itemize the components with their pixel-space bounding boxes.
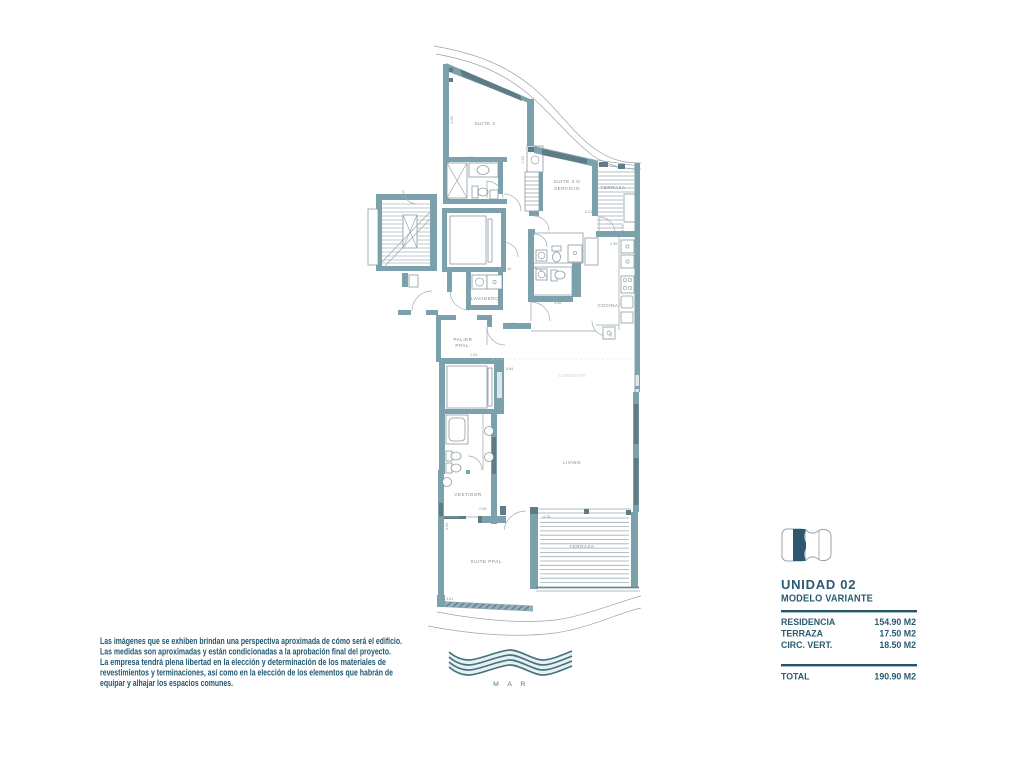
svg-text:3.61: 3.61 <box>446 597 453 601</box>
svg-text:Las medidas son aproximadas y: Las medidas son aproximadas y están cond… <box>100 647 391 657</box>
svg-text:2.58: 2.58 <box>479 507 486 511</box>
svg-text:190.90 M2: 190.90 M2 <box>874 672 916 682</box>
svg-text:18.50 M2: 18.50 M2 <box>879 640 916 650</box>
svg-text:2.35: 2.35 <box>610 242 617 246</box>
svg-text:1.25: 1.25 <box>476 305 483 309</box>
svg-text:SUITE PPAL.: SUITE PPAL. <box>471 559 504 564</box>
svg-text:SERVICIO: SERVICIO <box>554 186 580 191</box>
svg-text:TERRAZA: TERRAZA <box>781 629 824 639</box>
svg-text:Las imágenes que se exhiben br: Las imágenes que se exhiben brindan una … <box>100 636 402 646</box>
svg-text:RESIDENCIA: RESIDENCIA <box>781 617 836 627</box>
svg-text:1.94: 1.94 <box>470 353 477 357</box>
svg-text:revestimientos y terminaciones: revestimientos y terminaciones, así como… <box>100 668 393 678</box>
svg-text:UNIDAD 02: UNIDAD 02 <box>781 577 857 592</box>
svg-text:PPAL.: PPAL. <box>455 343 470 348</box>
svg-text:TERRAZA: TERRAZA <box>570 544 595 549</box>
svg-text:5.84: 5.84 <box>506 367 513 371</box>
svg-text:La empresa tendrá plena libert: La empresa tendrá plena libertad en la e… <box>100 657 386 667</box>
svg-text:4.66: 4.66 <box>554 301 561 305</box>
svg-text:VESTIDOR: VESTIDOR <box>454 492 482 497</box>
svg-text:TOTAL: TOTAL <box>781 672 810 682</box>
svg-text:LIVING: LIVING <box>563 460 581 465</box>
svg-text:2.21: 2.21 <box>585 210 592 214</box>
svg-text:154.90 M2: 154.90 M2 <box>874 617 916 627</box>
svg-text:PALIER: PALIER <box>454 337 473 342</box>
svg-text:equipar y alhajar los espacios: equipar y alhajar los espacios comunes. <box>100 678 233 688</box>
svg-text:1.11: 1.11 <box>508 322 515 326</box>
svg-text:LAVADERO: LAVADERO <box>471 296 499 301</box>
svg-text:COMEDOR: COMEDOR <box>558 373 586 378</box>
svg-text:CIRC. VERT.: CIRC. VERT. <box>781 640 832 650</box>
svg-text:4.43: 4.43 <box>621 225 625 232</box>
svg-text:3.00: 3.00 <box>445 523 449 530</box>
svg-text:MODELO VARIANTE: MODELO VARIANTE <box>781 594 873 605</box>
svg-text:M A R: M A R <box>493 681 529 688</box>
svg-text:4.38: 4.38 <box>543 515 550 519</box>
svg-text:SUITE 3 O: SUITE 3 O <box>554 179 581 184</box>
svg-text:1.90: 1.90 <box>521 156 525 163</box>
svg-text:1.63: 1.63 <box>437 317 441 324</box>
svg-text:17.50 M2: 17.50 M2 <box>879 629 916 639</box>
svg-text:1.80: 1.80 <box>493 477 497 484</box>
svg-text:3.50: 3.50 <box>450 116 454 123</box>
svg-text:COCINA: COCINA <box>598 303 619 308</box>
svg-text:TERRAZA: TERRAZA <box>601 185 626 190</box>
svg-text:1.60: 1.60 <box>466 156 473 160</box>
svg-text:SUITE 2: SUITE 2 <box>475 121 496 126</box>
svg-text:7.41: 7.41 <box>609 333 613 340</box>
svg-text:1.16: 1.16 <box>504 267 511 271</box>
